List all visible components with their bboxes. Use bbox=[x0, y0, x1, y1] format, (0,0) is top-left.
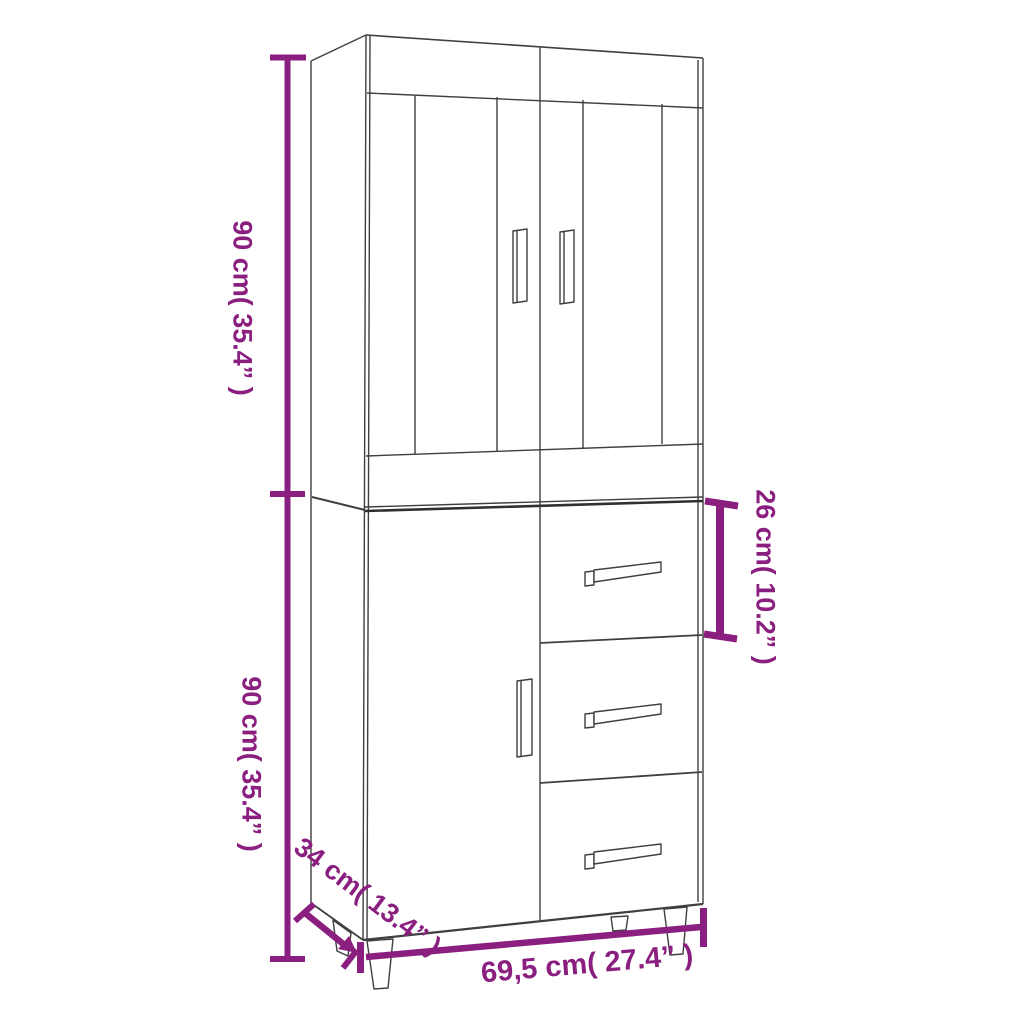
drawer1-handle bbox=[585, 562, 661, 586]
cornice-line bbox=[367, 93, 703, 108]
glass-door1-handle bbox=[513, 229, 527, 303]
dimension-annotations bbox=[270, 57, 738, 973]
lower-height-label: 90 cm( 35.4” ) bbox=[237, 676, 267, 852]
base-door-handle bbox=[517, 679, 532, 757]
top-edge bbox=[366, 35, 703, 58]
door-bottom-rail bbox=[366, 444, 703, 456]
side-panel-top-edge bbox=[311, 35, 366, 61]
drawer-height-dimension bbox=[704, 501, 738, 639]
drawer-tick-bottom bbox=[704, 634, 737, 639]
back-right-leg bbox=[611, 916, 628, 931]
depth-dimension-line bbox=[305, 913, 347, 947]
diagram-canvas: 90 cm( 35.4” ) 90 cm( 35.4” ) 26 cm( 10.… bbox=[0, 0, 1024, 1024]
depth-tick-front bbox=[343, 950, 357, 968]
cabinet-drawing bbox=[311, 35, 703, 989]
front-left-leg bbox=[367, 939, 393, 989]
front-left-edge-inner bbox=[367, 36, 370, 939]
side-panel-junction-seam bbox=[312, 497, 365, 510]
drawer-tick-top bbox=[705, 501, 738, 506]
drawer-seam-2 bbox=[540, 772, 702, 783]
upper-height-label: 90 cm( 35.4” ) bbox=[228, 220, 258, 396]
product-dimension-diagram: 90 cm( 35.4” ) 90 cm( 35.4” ) 26 cm( 10.… bbox=[0, 0, 1024, 1024]
height-dimension bbox=[270, 57, 306, 959]
front-left-edge bbox=[363, 35, 366, 940]
drawer3-handle bbox=[585, 844, 661, 869]
drawer-height-label: 26 cm( 10.2” ) bbox=[751, 489, 781, 665]
drawer2-handle bbox=[585, 704, 661, 728]
glass-door2-handle bbox=[560, 230, 574, 304]
drawer-seam-1 bbox=[540, 635, 702, 643]
